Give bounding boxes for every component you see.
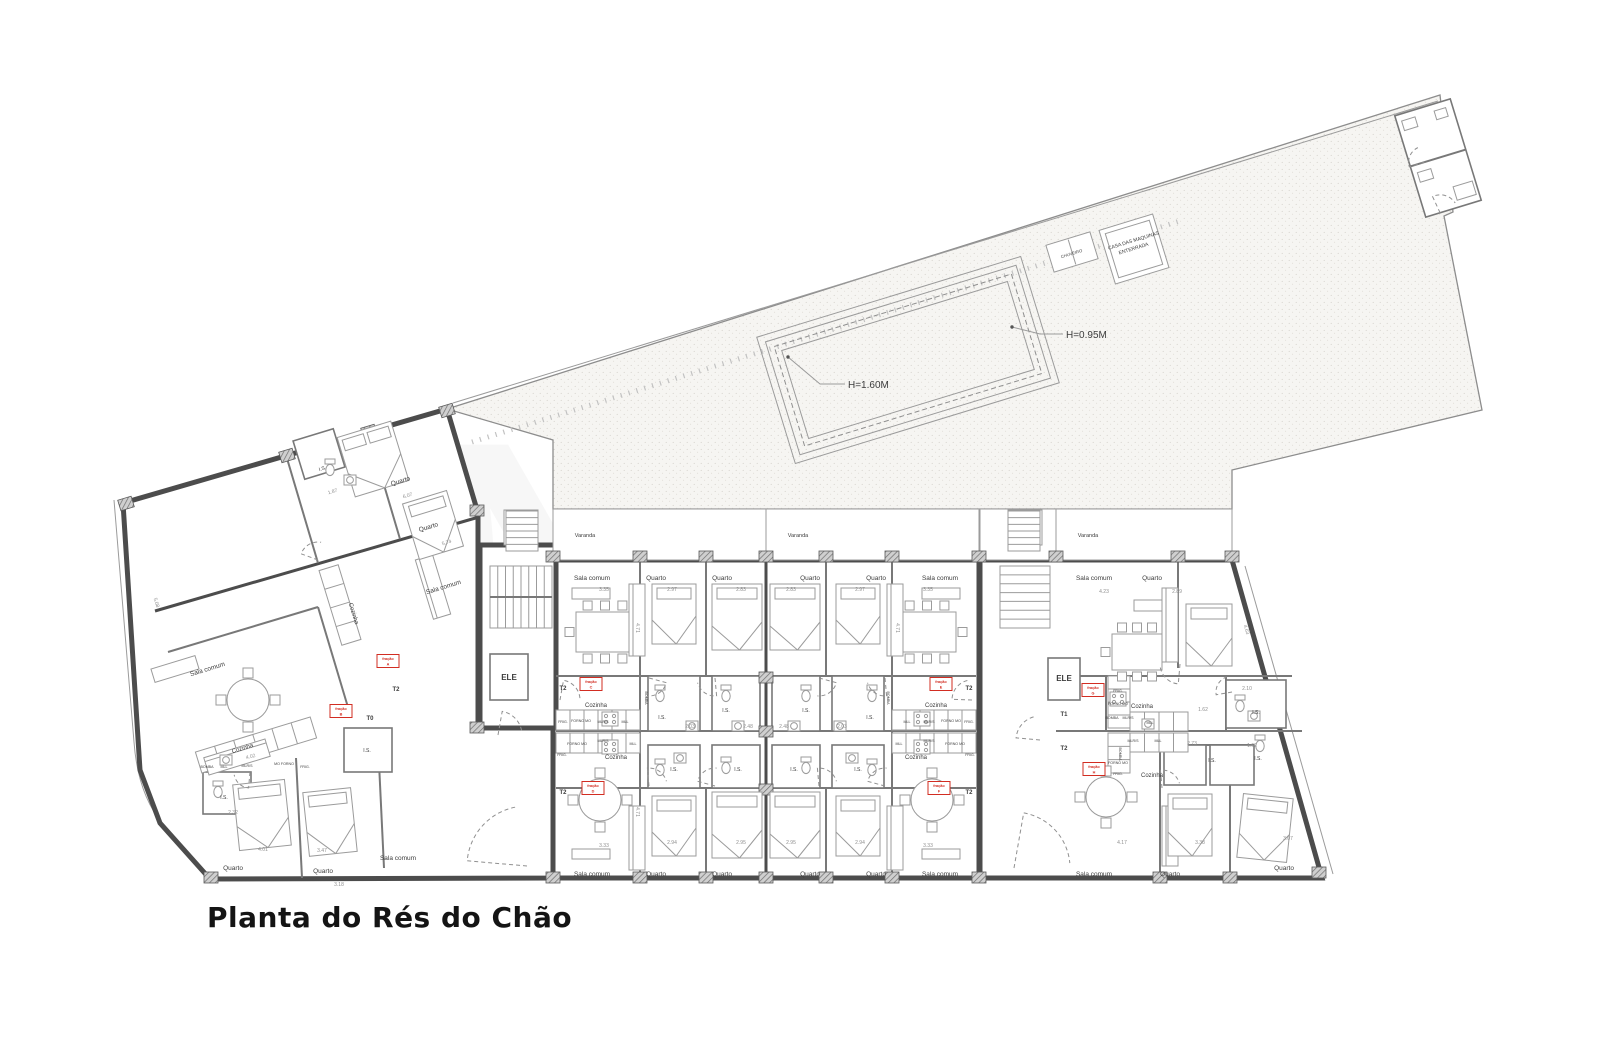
floorplan-page: NGH=1.60MH=0.95MVarandaVarandaVarandaSal… <box>0 0 1600 1062</box>
toilet-tank <box>721 685 731 690</box>
room-label: Cozinha <box>585 703 608 709</box>
room-label: Varanda <box>575 533 596 539</box>
toilet-tank <box>867 759 877 764</box>
wall-pillar <box>885 872 899 883</box>
room-label: Quarto <box>313 868 333 875</box>
appliance-label: BOMBA <box>201 765 215 769</box>
toilet-tank <box>801 685 811 690</box>
chair <box>601 601 610 610</box>
unit-type-tag: T1 <box>1060 712 1068 718</box>
wall-pillar <box>1049 551 1063 562</box>
dimension-label: 4.17 <box>1117 840 1127 846</box>
unit-type-tag: T0 <box>366 716 374 722</box>
chair <box>595 822 605 832</box>
chair <box>1118 672 1127 681</box>
wall-pillar <box>699 872 713 883</box>
wall-pillar <box>759 672 773 683</box>
dimension-label: 2.48 <box>779 724 789 730</box>
dimension-label: 3.07 <box>1283 836 1293 842</box>
toilet <box>868 764 876 775</box>
toilet-tank <box>801 757 811 762</box>
unit-type-tag: T2 <box>559 686 567 692</box>
room-label: Quarto <box>223 865 243 872</box>
bed <box>712 584 762 650</box>
appliance-label: MLL <box>622 720 629 724</box>
fracao-tag-line2: D <box>592 790 595 794</box>
round-table <box>1086 777 1126 817</box>
room-label: Cozinha <box>605 755 628 761</box>
chair <box>1127 792 1137 802</box>
appliance-label: MLR/S <box>242 764 254 768</box>
appliance-label: FORNO MO <box>941 719 961 723</box>
room-label: I.S. <box>670 767 678 773</box>
appliance-label: FRIG. <box>965 753 975 757</box>
room-label: Quarto <box>1142 575 1162 582</box>
toilet <box>868 690 876 701</box>
appliance-label: FRIG. <box>300 765 310 769</box>
sofa <box>629 584 645 656</box>
room-label: Sala comum <box>574 871 610 878</box>
wall-pillar <box>546 872 560 883</box>
appliance-label: BOMBA <box>1106 716 1120 720</box>
pool-depth-dot <box>786 355 789 358</box>
chair <box>1101 648 1110 657</box>
fracao-tag-line2: B <box>340 713 343 717</box>
dimension-label: 2.83 <box>736 587 746 593</box>
bed <box>836 796 880 856</box>
toilet-tank <box>655 759 665 764</box>
room-label: I.S. <box>1208 758 1216 764</box>
dimension-label: 2.48 <box>743 724 753 730</box>
chair <box>618 654 627 663</box>
appliance-label: MLR/S <box>598 739 610 743</box>
wall-pillar <box>759 551 773 562</box>
chair <box>583 601 592 610</box>
appliance-label: MLR/S <box>1123 716 1135 720</box>
room-label: I.S. <box>722 708 730 714</box>
chair <box>1118 623 1127 632</box>
toilet <box>722 762 730 773</box>
room-label: I.S. <box>363 748 371 754</box>
room-label: Cozinha <box>905 755 928 761</box>
dimension-label: 2.97 <box>855 587 865 593</box>
dining-table <box>898 612 956 652</box>
dimension-label: 2.73 <box>1187 741 1197 747</box>
terrace-deck <box>447 95 1482 509</box>
room-label: ELE <box>501 673 517 682</box>
wall-pillar <box>819 551 833 562</box>
toilet <box>722 690 730 701</box>
fracao-tag-line1: fração <box>933 784 945 788</box>
dimension-label: 1.62 <box>1198 707 1208 713</box>
bed <box>770 584 820 650</box>
chair <box>601 654 610 663</box>
dimension-label: 3.33 <box>599 843 609 849</box>
chair <box>958 628 967 637</box>
sofa <box>1162 588 1178 662</box>
bed <box>652 796 696 856</box>
pool-depth-label: H=0.95M <box>1066 330 1107 341</box>
dimension-label: 3.18 <box>334 882 344 888</box>
room-label: Sala comum <box>922 871 958 878</box>
bed <box>303 788 357 857</box>
wall-pillar <box>546 551 560 562</box>
appliance-label: MLR/S <box>924 739 936 743</box>
wall-pillar <box>470 722 484 733</box>
bed <box>836 584 880 644</box>
bed <box>712 792 762 858</box>
appliance-label: FORNO MO <box>1108 761 1128 765</box>
room-label: I.S. <box>658 715 666 721</box>
chair <box>1133 672 1142 681</box>
dimension-label: 2.03 <box>685 724 695 730</box>
dimension-label: 4.71 <box>634 807 640 817</box>
toilet <box>1256 740 1264 751</box>
room-label: Varanda <box>1078 533 1099 539</box>
wall-pillar <box>1225 551 1239 562</box>
bed <box>233 779 292 850</box>
toilet <box>1236 700 1244 711</box>
sofa <box>887 584 903 656</box>
wall-pillar <box>699 551 713 562</box>
dining-table <box>576 612 634 652</box>
unit-type-tag: T2 <box>965 790 973 796</box>
toilet-tank <box>655 685 665 690</box>
room-label: Quarto <box>1160 871 1180 878</box>
appliance-label: MLL <box>221 765 228 769</box>
chair <box>1133 623 1142 632</box>
chair <box>618 601 627 610</box>
appliance-label: MLR/S <box>1128 739 1140 743</box>
room-label: BOMBA <box>644 692 648 706</box>
chair <box>583 654 592 663</box>
room-label: Quarto <box>800 575 820 582</box>
chair <box>905 601 914 610</box>
dining-table <box>1112 634 1162 670</box>
chair <box>940 654 949 663</box>
dimension-label: 2.83 <box>786 587 796 593</box>
appliance-label: FORNO MO <box>1108 702 1128 706</box>
wall-pillar <box>759 872 773 883</box>
fracao-tag-line1: fração <box>335 707 347 711</box>
fracao-tag-line2: G <box>1092 692 1095 696</box>
chair <box>565 628 574 637</box>
unit-type-tag: T2 <box>392 687 400 693</box>
chair <box>954 795 964 805</box>
fracao-tag-line1: fração <box>382 657 394 661</box>
appliance-label: FRIG. <box>964 720 974 724</box>
wall-pillar <box>470 505 484 516</box>
dimension-label: 4.71 <box>894 623 900 633</box>
wall-pillar <box>759 726 773 737</box>
room-label: Cozinha <box>1141 773 1164 779</box>
appliance-label: MLR/S <box>598 720 610 724</box>
toilet <box>326 464 334 475</box>
dimension-label: 2.94 <box>855 840 865 846</box>
dimension-label: 2.10 <box>1242 686 1252 692</box>
dimension-label: 2.03 <box>837 724 847 730</box>
appliance-label: FRIG. <box>558 720 568 724</box>
dimension-label: 3.38 <box>1195 840 1205 846</box>
dimension-label: 2.95 <box>786 840 796 846</box>
room-label: I.S. <box>802 708 810 714</box>
chair <box>1148 623 1157 632</box>
toilet-tank <box>325 459 335 464</box>
toilet <box>802 690 810 701</box>
room-label: Quarto <box>646 575 666 582</box>
dimension-label: 2.95 <box>736 840 746 846</box>
room-label: Varanda <box>788 533 809 539</box>
chair <box>923 601 932 610</box>
sofa <box>887 806 903 870</box>
appliance-label: MLL <box>896 742 903 746</box>
room-label: Quarto <box>712 871 732 878</box>
chair <box>927 822 937 832</box>
chair <box>1075 792 1085 802</box>
fracao-tag-line1: fração <box>585 680 597 684</box>
fracao-tag-line2: H <box>1093 771 1096 775</box>
wall-pillar <box>972 872 986 883</box>
fracao-tag-line1: fração <box>587 784 599 788</box>
toilet-tank <box>213 781 223 786</box>
appliance-label: MLL <box>630 742 637 746</box>
bed <box>770 792 820 858</box>
room-label: I.S. <box>854 767 862 773</box>
wall-pillar <box>633 872 647 883</box>
wall-pillar <box>1171 551 1185 562</box>
unit-type-tag: T2 <box>559 790 567 796</box>
wall-pillar <box>1223 872 1237 883</box>
unit-type-tag: T2 <box>965 686 973 692</box>
appliance-label: MO FORNO <box>274 762 294 766</box>
appliance-label: FORNO MO <box>567 742 587 746</box>
chair <box>622 795 632 805</box>
chair <box>923 654 932 663</box>
wall-pillar <box>204 872 218 883</box>
room-label: Quarto <box>1274 865 1294 872</box>
room-label: Quarto <box>866 871 886 878</box>
toilet <box>656 764 664 775</box>
chair <box>216 695 226 705</box>
appliance-label: BOMBA <box>1118 748 1122 762</box>
chair <box>595 768 605 778</box>
fracao-tag-line1: fração <box>1087 686 1099 690</box>
room-label: Sala comum <box>922 575 958 582</box>
wall-pillar <box>972 551 986 562</box>
room-label: Sala comum <box>1076 871 1112 878</box>
appliance-label: MLL <box>904 720 911 724</box>
veranda-or-cabinet <box>572 849 610 859</box>
dimension-label: 4.01 <box>258 847 268 853</box>
room-label: I.S. <box>866 715 874 721</box>
wall-pillar <box>633 551 647 562</box>
bed <box>652 584 696 644</box>
chair <box>940 601 949 610</box>
wall-pillar <box>1312 867 1326 878</box>
dimension-label: 3.47 <box>317 848 327 854</box>
toilet-tank <box>867 685 877 690</box>
dimension-label: 2.94 <box>667 840 677 846</box>
room-label: ELE <box>1056 674 1072 683</box>
appliance-label: FORNO MO <box>571 719 591 723</box>
room-label: Quarto <box>866 575 886 582</box>
unit-type-tag: T2 <box>1060 746 1068 752</box>
dimension-label: 2.97 <box>667 587 677 593</box>
room-box <box>1210 745 1254 785</box>
room-label: Cozinha <box>925 703 948 709</box>
room-label: Quarto <box>646 871 666 878</box>
toilet <box>802 762 810 773</box>
room-label: Quarto <box>800 871 820 878</box>
plan-title: Planta do Rés do Chão <box>207 901 572 934</box>
room-label: Sala comum <box>380 855 416 862</box>
room-label: I.S. <box>1252 710 1260 716</box>
dimension-label: 3.35 <box>599 587 609 593</box>
chair <box>1148 672 1157 681</box>
toilet-tank <box>721 757 731 762</box>
appliance-label: MLL <box>1155 739 1162 743</box>
appliance-label: FRIG. <box>1113 772 1123 776</box>
round-table <box>227 679 269 721</box>
fracao-tag-line1: fração <box>1088 765 1100 769</box>
chair <box>905 654 914 663</box>
appliance-label: FORNO MO <box>945 742 965 746</box>
fracao-tag-line2: E <box>940 686 943 690</box>
wall-pillar <box>819 872 833 883</box>
room-label: BOMBA <box>886 692 890 706</box>
dimension-label: 4.71 <box>634 623 640 633</box>
chair <box>270 695 280 705</box>
chair <box>900 795 910 805</box>
bed <box>1237 794 1293 863</box>
room-label: Cozinha <box>1131 704 1154 710</box>
chair <box>927 768 937 778</box>
dimension-label: 2.32 <box>228 810 238 816</box>
chair <box>568 795 578 805</box>
toilet-tank <box>1235 695 1245 700</box>
room-label: Sala comum <box>1076 575 1112 582</box>
room-label: Quarto <box>712 575 732 582</box>
pool-depth-label: H=1.60M <box>848 380 889 391</box>
fracao-tag-line2: C <box>590 686 593 690</box>
room-label: I.S. <box>734 767 742 773</box>
dimension-label: 2.89 <box>1172 589 1182 595</box>
chair <box>1101 818 1111 828</box>
room-label: I.S. <box>1254 756 1262 762</box>
appliance-label: MLR/S <box>924 720 936 724</box>
bed <box>1186 604 1232 666</box>
appliance-label: FRIG. <box>557 753 567 757</box>
dimension-label: 3.35 <box>923 587 933 593</box>
chair <box>243 722 253 732</box>
appliance-label: FRIG. <box>1113 689 1123 693</box>
fracao-tag-line2: A <box>387 663 390 667</box>
dimension-label: 4.23 <box>1099 589 1109 595</box>
fracao-tag-line1: fração <box>935 680 947 684</box>
pool-depth-dot <box>1010 325 1013 328</box>
room-label: I.S. <box>790 767 798 773</box>
veranda-or-cabinet <box>922 849 960 859</box>
room-label: Sala comum <box>574 575 610 582</box>
wall-pillar <box>885 551 899 562</box>
chair <box>243 668 253 678</box>
appliance-label: MLL <box>1147 721 1154 725</box>
bed <box>1168 794 1212 856</box>
room-label: I.S. <box>220 795 228 801</box>
dimension-label: 3.33 <box>923 843 933 849</box>
dimension-label: 1.62 <box>1247 743 1257 749</box>
toilet-tank <box>1255 735 1265 740</box>
